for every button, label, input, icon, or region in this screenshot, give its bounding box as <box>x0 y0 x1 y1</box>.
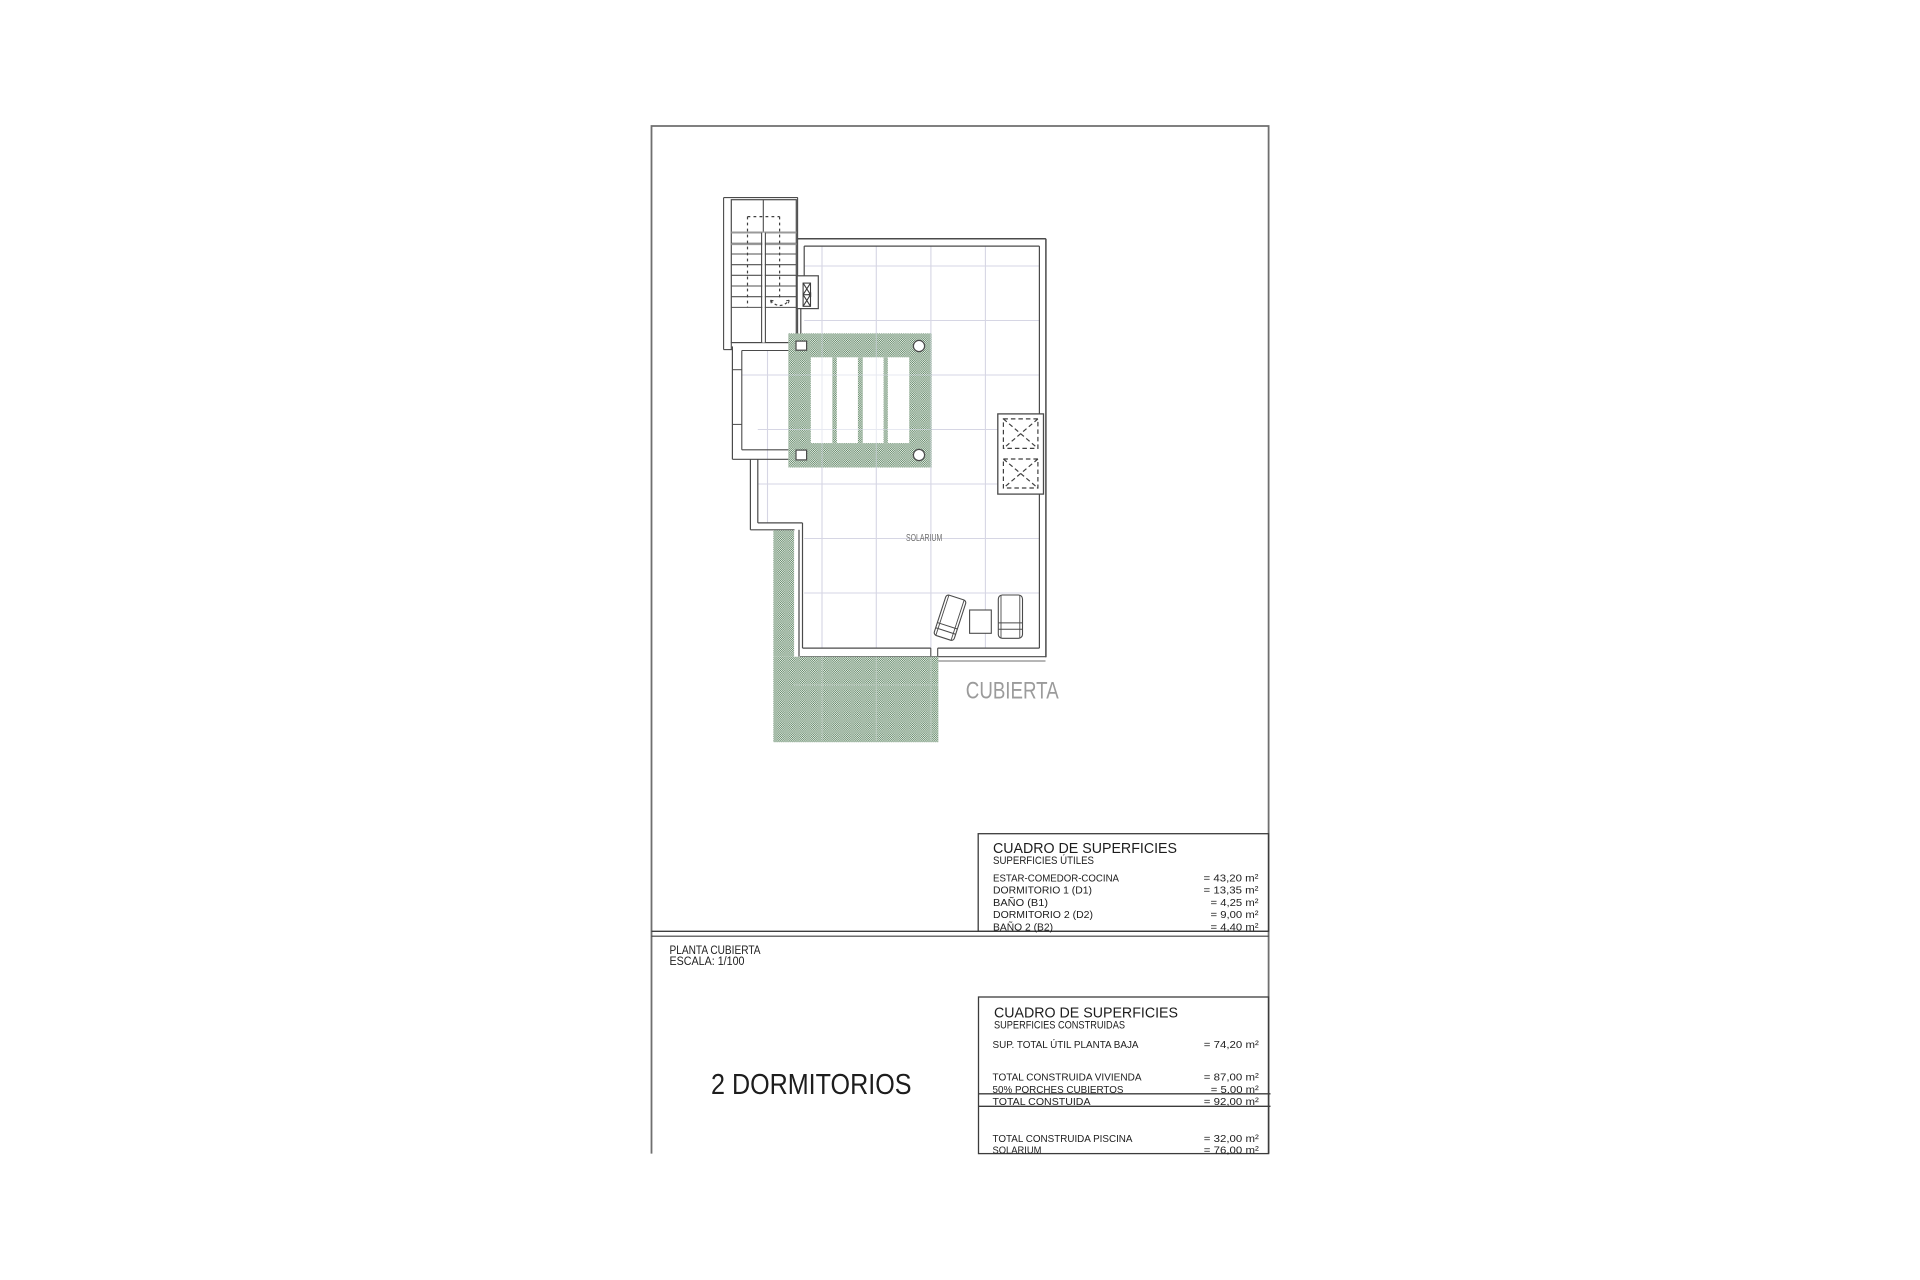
svg-text:BAÑO (B1): BAÑO (B1) <box>993 896 1048 909</box>
svg-text:SUPERFICIES CONSTRUIDAS: SUPERFICIES CONSTRUIDAS <box>994 1020 1125 1032</box>
svg-text:SUPERFICIES ÚTILES: SUPERFICIES ÚTILES <box>993 854 1094 867</box>
svg-text:= 87,00 m²: = 87,00 m² <box>1204 1072 1260 1084</box>
svg-text:SOLARIUM: SOLARIUM <box>993 1145 1042 1157</box>
svg-text:CUBIERTA: CUBIERTA <box>966 677 1059 704</box>
svg-text:TOTAL CONSTRUIDA VIVIENDA: TOTAL CONSTRUIDA VIVIENDA <box>993 1072 1142 1084</box>
svg-text:TOTAL CONSTRUIDA PISCINA: TOTAL CONSTRUIDA PISCINA <box>993 1133 1133 1145</box>
svg-text:= 43,20 m²: = 43,20 m² <box>1204 872 1260 884</box>
svg-text:= 4,40 m²: = 4,40 m² <box>1211 922 1260 934</box>
svg-text:ESTAR-COMEDOR-COCINA: ESTAR-COMEDOR-COCINA <box>993 872 1119 884</box>
svg-text:SUP. TOTAL ÚTIL PLANTA BAJA: SUP. TOTAL ÚTIL PLANTA BAJA <box>993 1038 1139 1051</box>
svg-text:= 74,20 m²: = 74,20 m² <box>1204 1039 1260 1051</box>
svg-text:DORMITORIO 2 (D2): DORMITORIO 2 (D2) <box>993 909 1093 921</box>
svg-text:DORMITORIO 1 (D1): DORMITORIO 1 (D1) <box>993 885 1092 897</box>
svg-text:SOLARIUM: SOLARIUM <box>906 532 942 544</box>
svg-text:= 32,00 m²: = 32,00 m² <box>1204 1133 1260 1145</box>
svg-text:= 76,00 m²: = 76,00 m² <box>1204 1145 1260 1157</box>
svg-text:= 13,35 m²: = 13,35 m² <box>1204 885 1260 897</box>
svg-text:= 9,00 m²: = 9,00 m² <box>1211 909 1260 921</box>
svg-text:BAÑO 2 (B2): BAÑO 2 (B2) <box>993 921 1053 934</box>
svg-text:= 4,25 m²: = 4,25 m² <box>1211 897 1260 909</box>
svg-text:2 DORMITORIOS: 2 DORMITORIOS <box>711 1069 912 1101</box>
svg-text:ESCALA: 1/100: ESCALA: 1/100 <box>670 956 745 968</box>
